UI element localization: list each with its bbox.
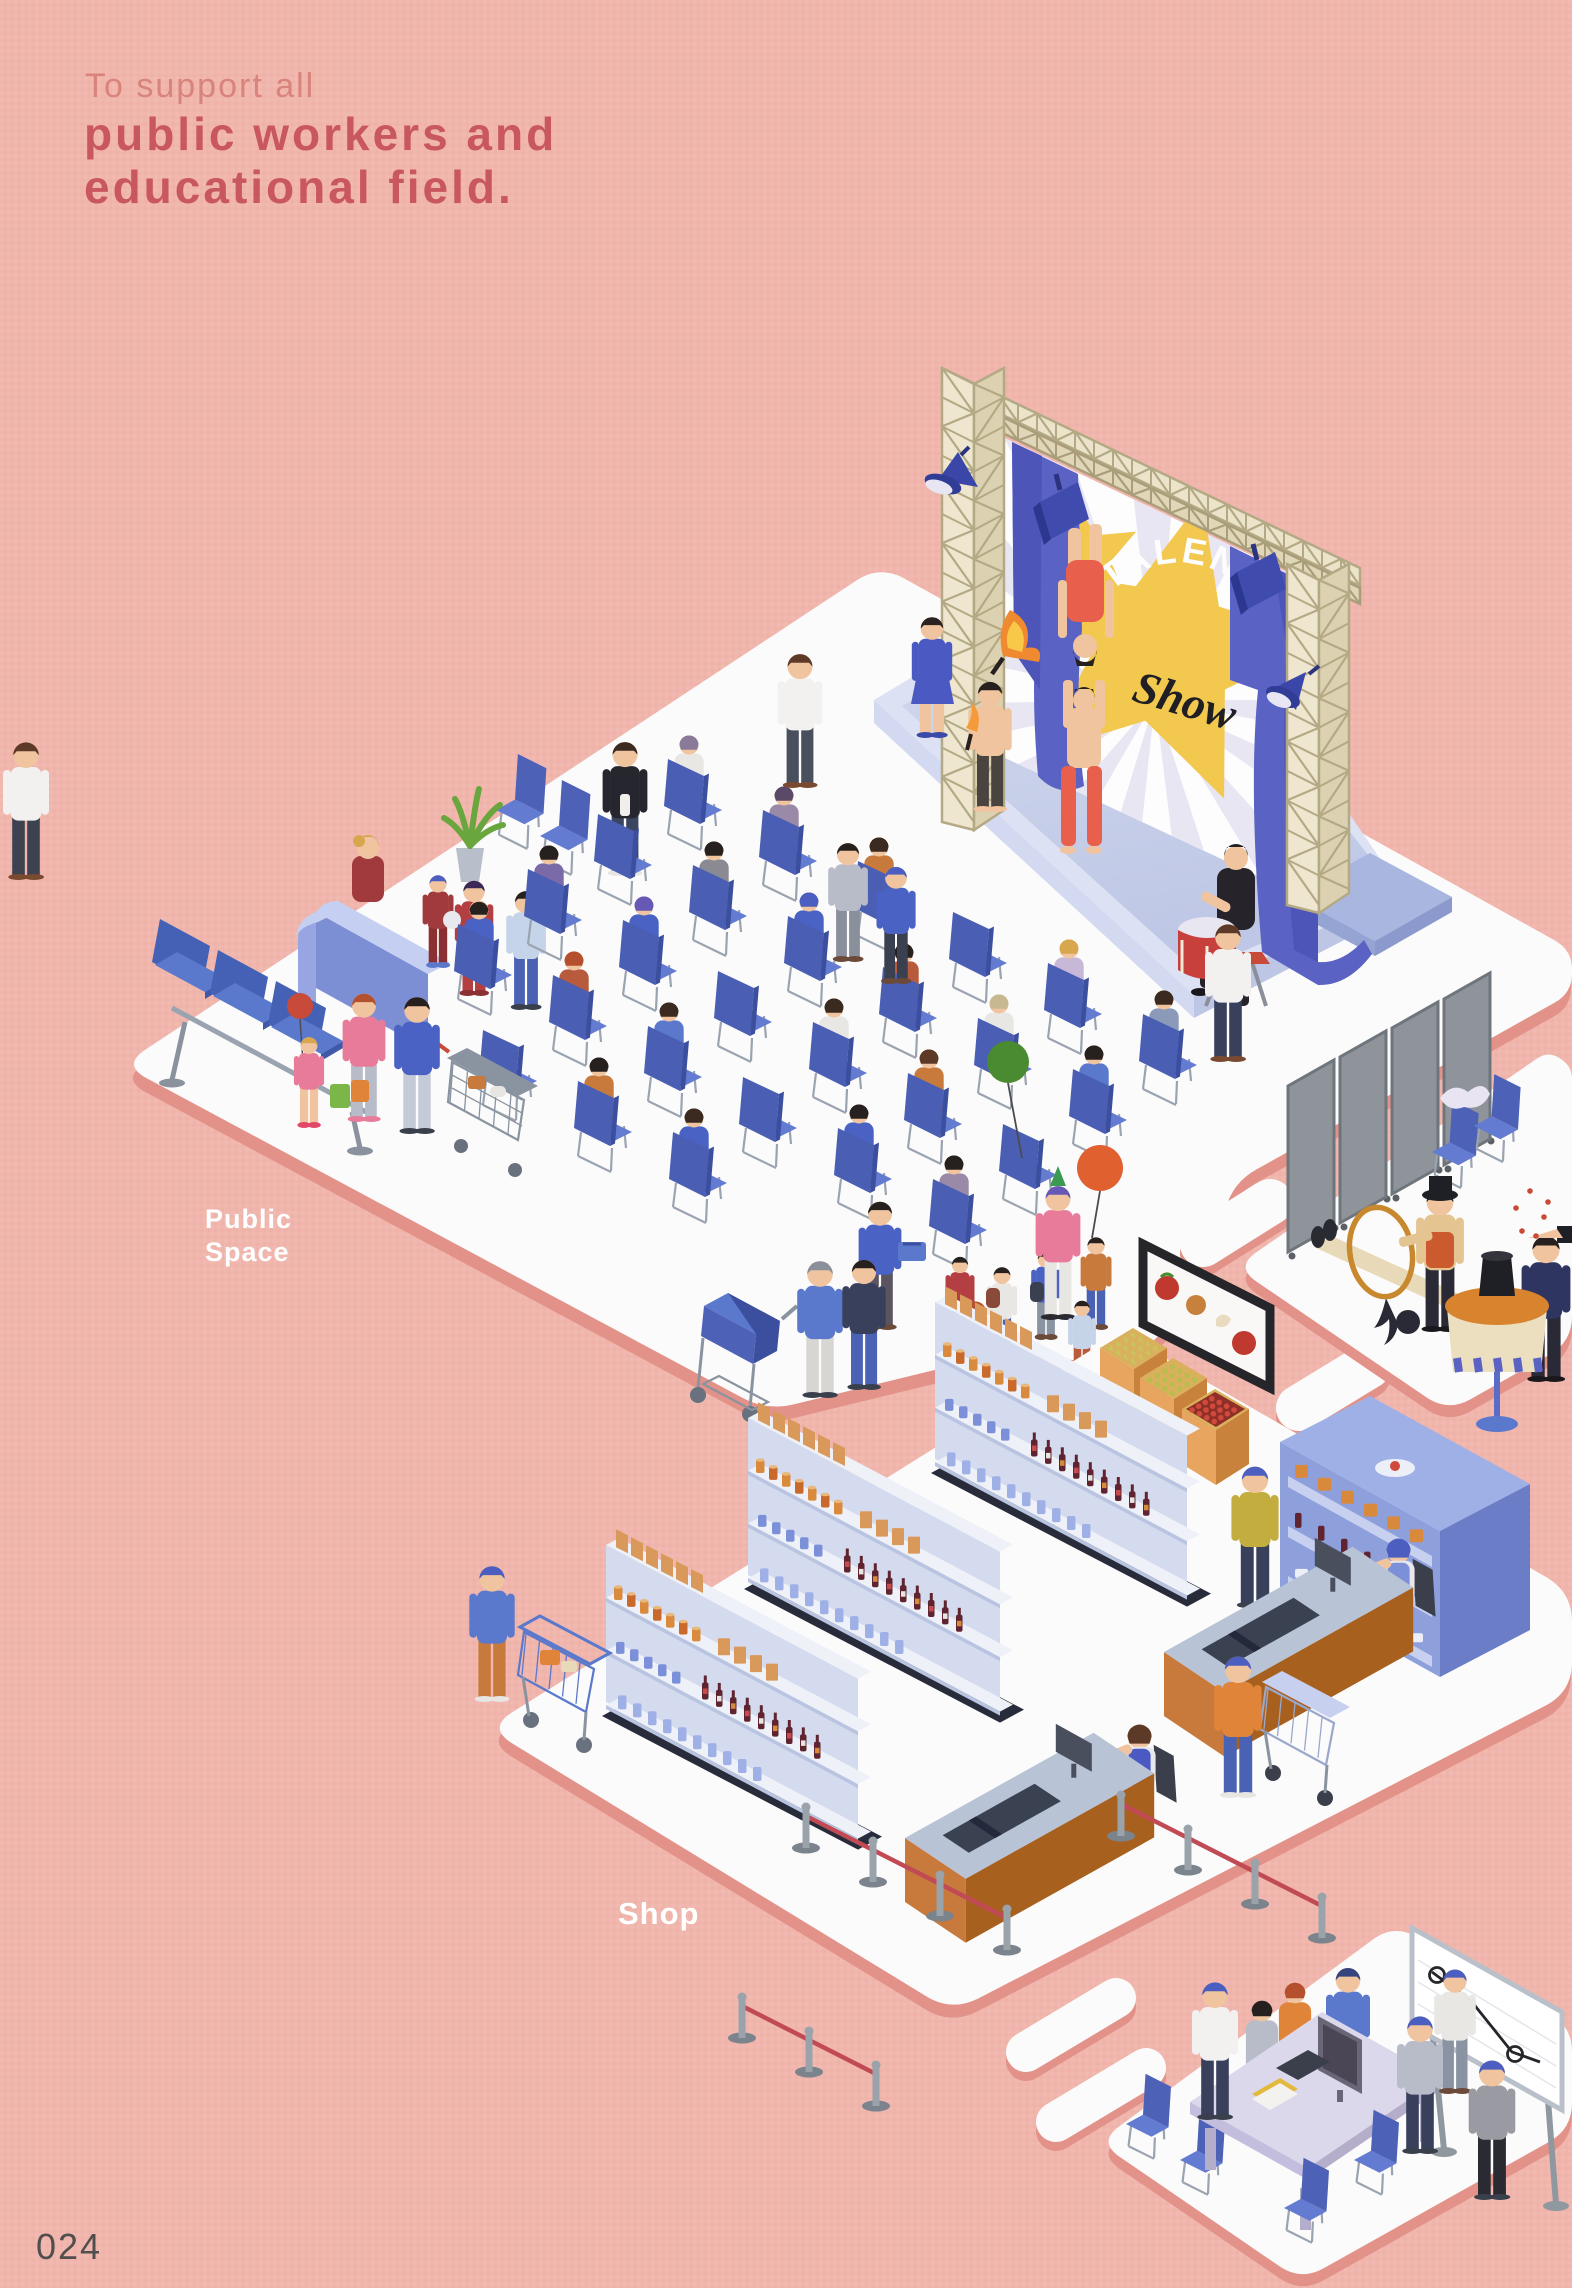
svg-text:Public: Public [205, 1204, 292, 1234]
svg-text:public workers and: public workers and [84, 108, 557, 160]
svg-text:Space: Space [205, 1237, 290, 1267]
svg-text:To support all: To support all [85, 67, 315, 105]
svg-text:024: 024 [36, 2226, 102, 2267]
svg-text:Shop: Shop [618, 1896, 700, 1931]
svg-text:educational field.: educational field. [84, 161, 514, 213]
